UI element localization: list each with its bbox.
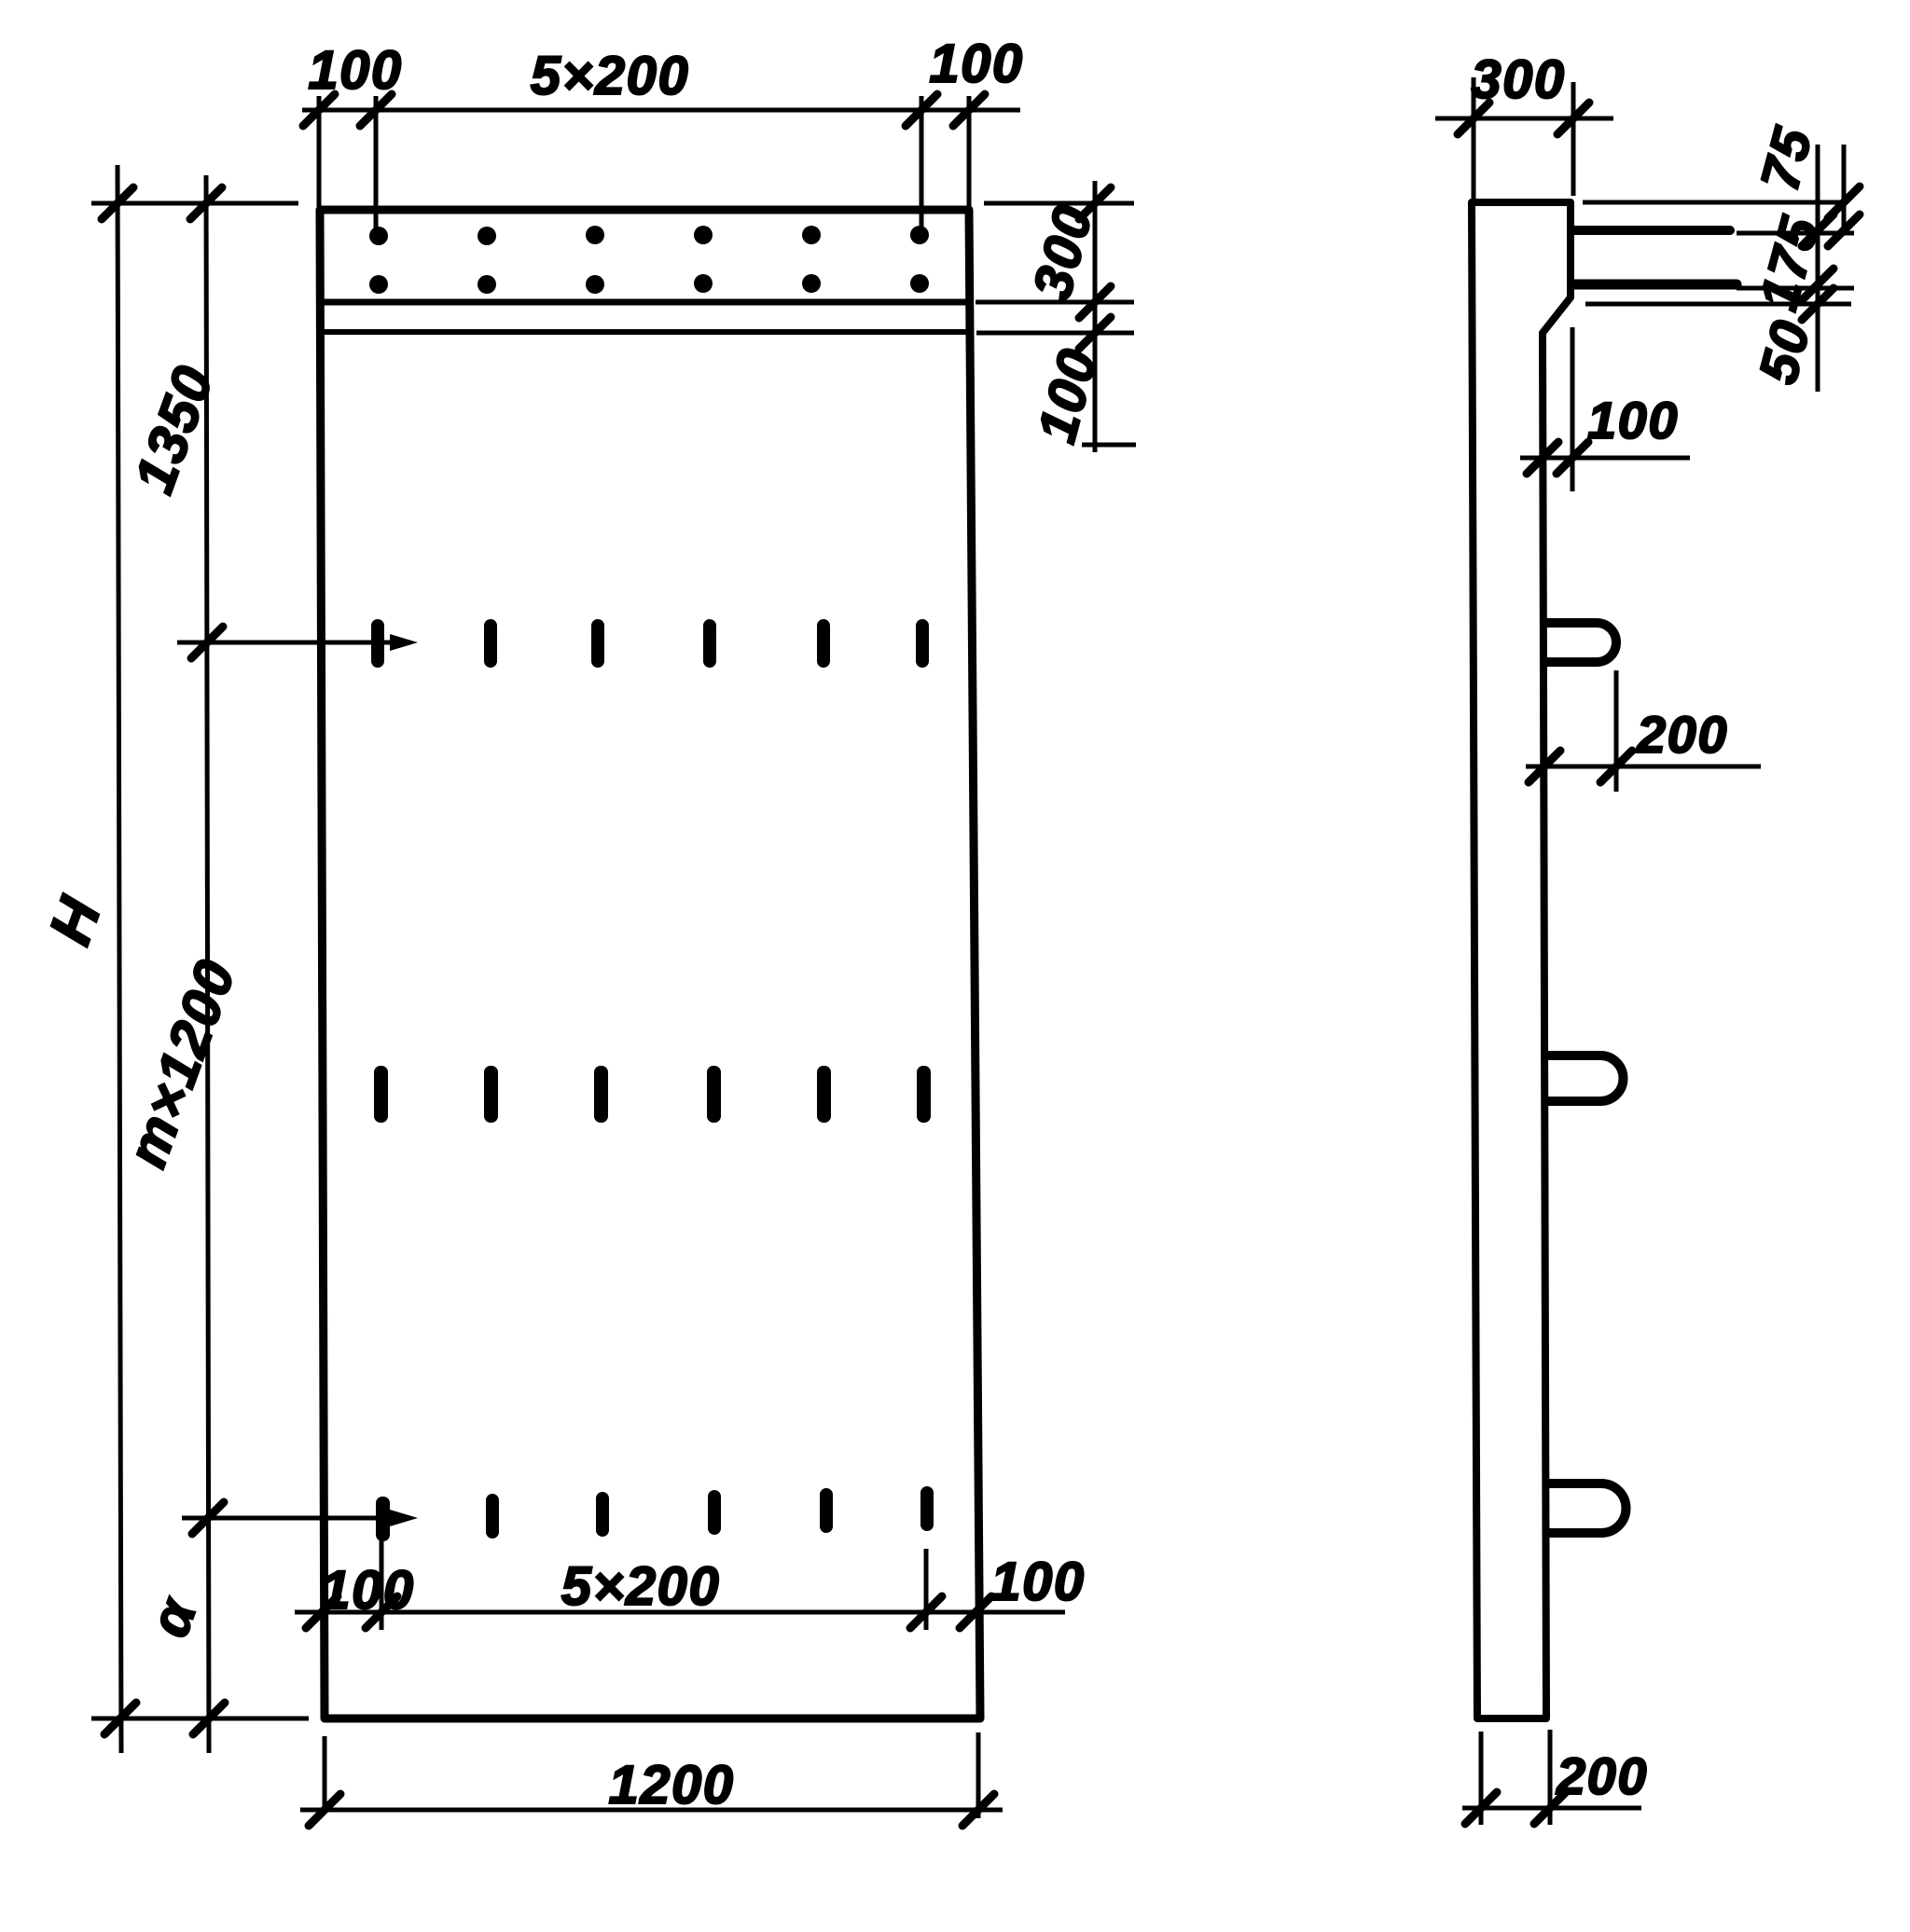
- svg-text:200: 200: [1556, 1746, 1648, 1805]
- svg-text:100: 100: [1587, 391, 1679, 449]
- svg-text:200: 200: [1636, 705, 1728, 764]
- svg-text:1200: 1200: [608, 1755, 734, 1815]
- svg-text:5×200: 5×200: [531, 46, 689, 106]
- svg-text:5×200: 5×200: [561, 1556, 720, 1617]
- svg-text:100: 100: [990, 1552, 1085, 1612]
- svg-text:100: 100: [320, 1560, 414, 1621]
- svg-text:300: 300: [1471, 49, 1565, 110]
- svg-text:100: 100: [929, 34, 1023, 94]
- svg-text:100: 100: [308, 40, 402, 101]
